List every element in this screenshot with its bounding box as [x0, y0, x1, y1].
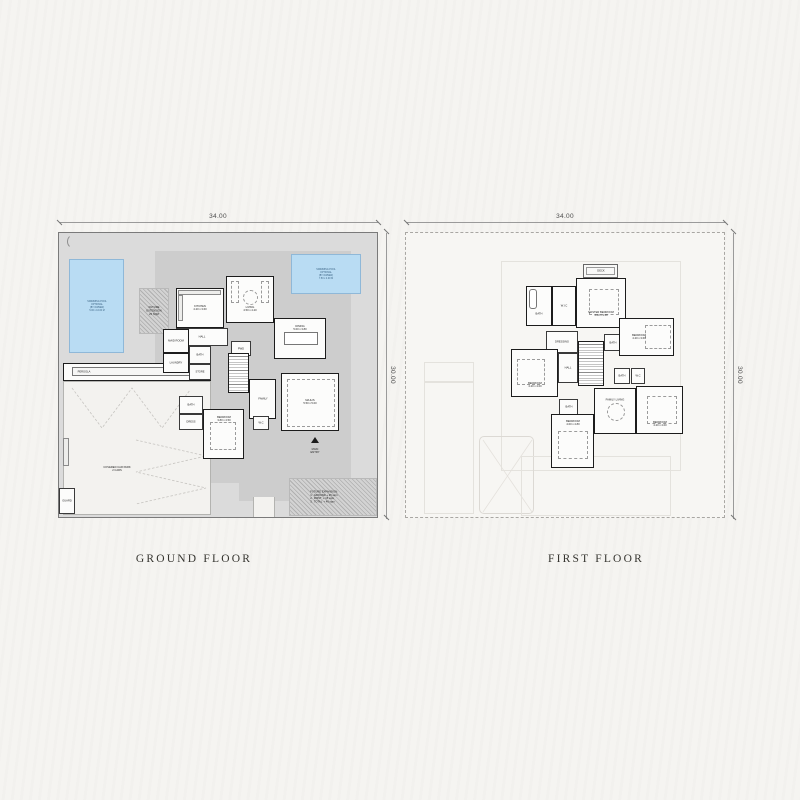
room-laundry: LAUNDRY [163, 353, 189, 373]
room-label: BATH [565, 405, 572, 408]
room-kitchen: KITCHEN 4.20 x 3.60 [176, 288, 224, 328]
room-maid: MAID ROOM [163, 329, 189, 353]
room-family-living: FAMILY LIVING [594, 388, 636, 434]
room-label: DINING 5.00 x 3.80 [293, 324, 306, 331]
room-label: W.I.C [561, 304, 568, 307]
room-label: MAID ROOM [168, 339, 184, 342]
planter-strip [63, 438, 69, 466]
room-dining: DINING 5.00 x 3.80 [274, 318, 326, 359]
room-bedroom-4: BEDROOM 4.00 x 4.80 [551, 414, 594, 468]
bed [558, 431, 588, 459]
room-bedroom-2: BEDROOM 4.20 x 3.60 [619, 318, 674, 356]
dimension-width-label: 34.00 [209, 213, 227, 220]
room-label: MASTER BEDROOM 4.80 x 4.50 [588, 310, 614, 317]
sofa [261, 281, 269, 303]
living-table [243, 290, 258, 305]
room-dress: DRESS [179, 414, 203, 430]
room-label: BEDROOM 4.20 x 4.00 [528, 381, 542, 388]
room-bedroom-5: BEDROOM 4.20 x 4.00 [636, 386, 683, 434]
room-label: W.C [635, 374, 640, 377]
room-living: LIVING 4.50 x 4.20 [226, 276, 274, 323]
room-label: HALL [199, 335, 206, 338]
guard-room: GUARD [59, 488, 75, 514]
room-label: LIVING 4.50 x 4.20 [243, 306, 256, 313]
dimension-line-right [733, 233, 734, 519]
first-floor-title: FIRST FLOOR [548, 553, 644, 565]
dimension-height-label: 30.00 [389, 366, 396, 384]
room-label: BATH [609, 341, 616, 344]
room-label: STORE [195, 370, 204, 373]
future-extension-label: FUTURE EXTENSION 25 SQM [146, 306, 161, 316]
room-majlis: MAJLIS 5.50 x 5.00 [281, 373, 339, 431]
dimension-line-right [386, 233, 387, 519]
room-label: MAJLIS 5.50 x 5.00 [303, 399, 316, 406]
room-wic: W.I.C [552, 286, 576, 326]
ground-floor-plan: 34.00 30.00 SWIMMING POOL OPTIONAL (BY O… [58, 232, 378, 518]
room-label: PWD [238, 347, 244, 350]
ghost-pergola [424, 362, 474, 382]
bed [210, 422, 236, 450]
staircase [578, 341, 604, 386]
room-label: BEDROOM 4.00 x 4.80 [566, 420, 580, 427]
bathtub [529, 289, 537, 309]
room-label: DRESSING [555, 340, 569, 343]
room-label: DRESS [186, 420, 195, 423]
room-label: BEDROOM 4.20 x 3.60 [632, 334, 646, 341]
round-rug [607, 403, 625, 421]
room-wc: W.C [253, 416, 269, 430]
first-floor-plan: 34.00 30.00 DECK MASTER BEDROOM 4.80 x 4… [405, 232, 725, 518]
room-bath-2: BATH [179, 396, 203, 414]
gate-arc [67, 234, 82, 249]
room-label: LAUNDRY [170, 361, 183, 364]
sofa [231, 281, 239, 303]
pool-label: SWIMMING POOL OPTIONAL (BY OWNER) 7.50 x… [316, 268, 335, 280]
kitchen-counter [178, 295, 183, 321]
dimension-line-top [406, 222, 726, 223]
room-bedroom-gf: BEDROOM 3.80 x 4.50 [203, 409, 244, 459]
dining-table [284, 332, 318, 345]
room-label: DECK [597, 269, 604, 272]
room-label: BATH [619, 374, 626, 377]
dimension-height-label: 30.00 [736, 366, 743, 384]
carpark-label: COVERED CAR PARK 2 CARS [103, 466, 130, 473]
main-entry-label: MAIN ENTRY [311, 448, 320, 455]
kitchen-counter [178, 290, 221, 295]
pergola-label: PERGOLA [78, 370, 91, 373]
notes-area: FUTURE EXPANSION: 1. GROUND + 25 sqm 2. … [289, 478, 377, 516]
ghost-terrace [521, 456, 671, 516]
pool-label: SWIMMING POOL OPTIONAL (BY OWNER) 5.00 x… [87, 300, 106, 312]
room-label: GUARD [62, 499, 72, 502]
room-label: BATH [197, 353, 204, 356]
room-bath-4: BATH [559, 399, 578, 415]
notes-text: FUTURE EXPANSION: 1. GROUND + 25 sqm 2. … [311, 490, 339, 504]
room-label: FAMILY [258, 397, 267, 400]
room-hall-ff: HALL [558, 353, 578, 383]
room-label: W.C [258, 421, 263, 424]
room-bath-5: BATH [614, 368, 630, 384]
ground-floor-title: GROUND FLOOR [136, 553, 252, 565]
dimension-width-label: 34.00 [556, 213, 574, 220]
staircase [228, 353, 249, 393]
room-deck: DECK [583, 264, 618, 278]
room-master-bath: BATH [526, 286, 552, 326]
ghost-driveway [424, 382, 474, 514]
room-label: BATH [188, 403, 195, 406]
dimension-line-top [59, 222, 379, 223]
room-bath-1: BATH [189, 346, 211, 364]
swimming-pool-left: SWIMMING POOL OPTIONAL (BY OWNER) 5.00 x… [69, 259, 124, 353]
entry-arrow-icon [311, 437, 319, 443]
floorplan-sheet: { "plans": { "ground": { "title": "GROUN… [0, 0, 800, 800]
bed [645, 325, 671, 349]
room-store: STORE [189, 364, 211, 380]
room-label: FAMILY LIVING [606, 398, 625, 401]
room-label: KITCHEN 4.20 x 3.60 [193, 305, 206, 312]
room-label: HALL [565, 366, 572, 369]
room-bedroom-3: BEDROOM 4.20 x 4.00 [511, 349, 558, 397]
room-family: FAMILY [249, 379, 276, 419]
room-label: BATH [536, 312, 543, 315]
room-label: BEDROOM 4.20 x 4.00 [653, 420, 667, 427]
room-label: BEDROOM 3.80 x 4.50 [217, 415, 231, 422]
future-extension-area: FUTURE EXTENSION 25 SQM [139, 288, 169, 334]
room-wc-2: W.C [631, 368, 645, 384]
entry-walk [253, 497, 275, 517]
swimming-pool-right: SWIMMING POOL OPTIONAL (BY OWNER) 7.50 x… [291, 254, 361, 294]
